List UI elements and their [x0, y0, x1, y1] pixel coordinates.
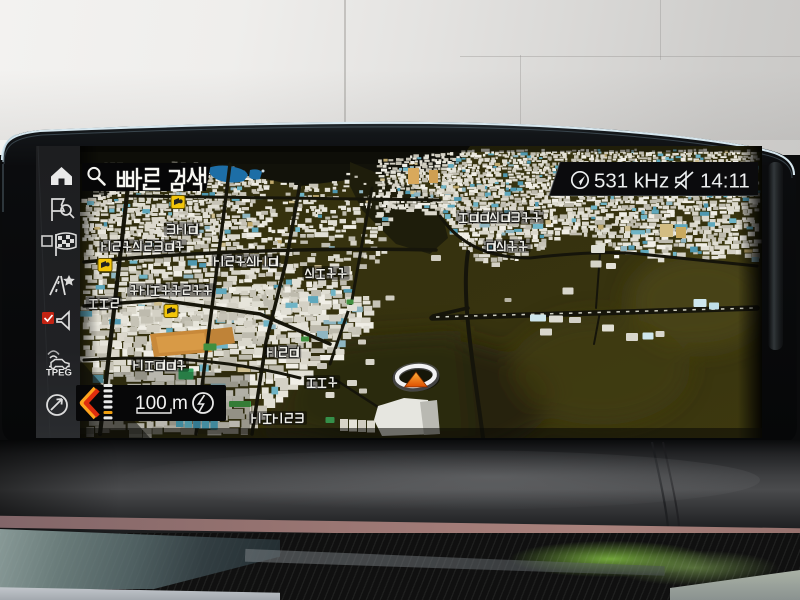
- svg-text:100 m: 100 m: [135, 393, 188, 414]
- svg-text:14:11: 14:11: [700, 170, 750, 193]
- svg-text:531 kHz: 531 kHz: [594, 170, 669, 193]
- svg-text:TPEG: TPEG: [46, 368, 72, 379]
